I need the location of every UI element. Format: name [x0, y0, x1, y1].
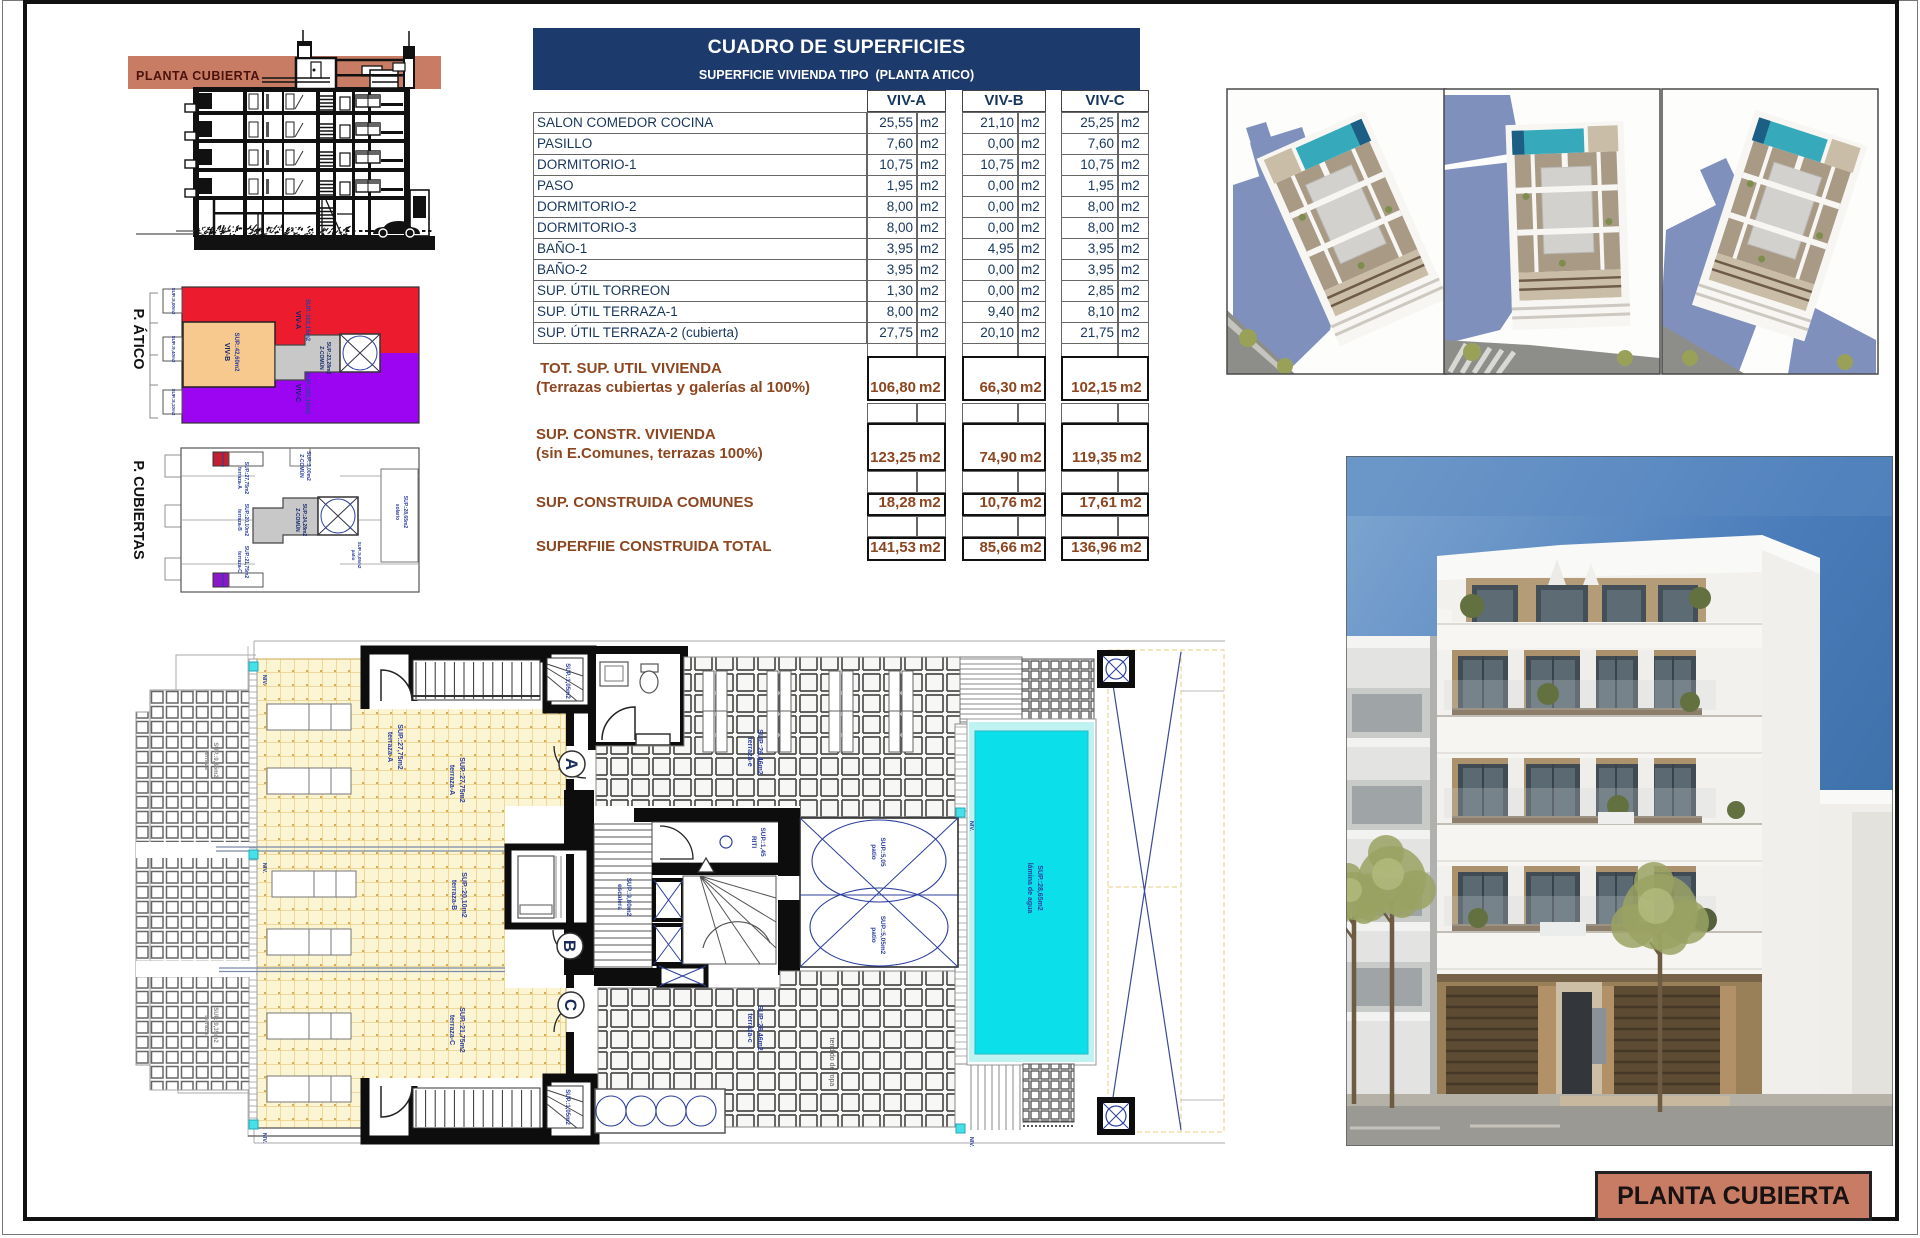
svg-text:terraza: terraza [203, 750, 209, 770]
svg-text:lámina de agua: lámina de agua [1026, 863, 1033, 914]
svg-text:P. CUBIERTAS: P. CUBIERTAS [130, 460, 146, 560]
svg-text:SUP.:102,15m2: SUP.:102,15m2 [304, 299, 310, 342]
svg-text:SUP.:42,60m2: SUP.:42,60m2 [233, 333, 239, 373]
svg-text:Z-COMÚN: Z-COMÚN [294, 508, 301, 532]
svg-text:terraza-A: terraza-A [386, 732, 393, 762]
svg-text:SUP.:3,00m2: SUP.:3,00m2 [305, 451, 311, 481]
svg-text:Z-COMÚN: Z-COMÚN [298, 454, 305, 478]
svg-text:tendido de ropa: tendido de ropa [828, 1038, 835, 1087]
svg-text:SUP.:28,65m2: SUP.:28,65m2 [1036, 865, 1043, 911]
svg-text:SUP.:27,75m2: SUP.:27,75m2 [458, 757, 465, 803]
svg-text:SUP.:21,75m2: SUP.:21,75m2 [458, 1007, 465, 1053]
svg-text:SUP.:8,00m2: SUP.:8,00m2 [171, 288, 176, 315]
svg-text:VIV-C: VIV-C [294, 384, 301, 402]
svg-text:SUP.:26,46m2: SUP.:26,46m2 [756, 729, 763, 775]
svg-text:terraza-B: terraza-B [450, 880, 457, 910]
svg-text:SUP.:102,15m2: SUP.:102,15m2 [304, 372, 310, 415]
svg-text:SUP.:1,05m2: SUP.:1,05m2 [564, 663, 570, 699]
svg-text:NIV.: NIV. [261, 1133, 267, 1144]
svg-text:SUP.:28,65m2: SUP.:28,65m2 [402, 496, 408, 529]
svg-text:SUP.:1,05m2: SUP.:1,05m2 [564, 1089, 570, 1125]
svg-text:patio: patio [870, 844, 877, 860]
svg-text:solario: solario [394, 504, 400, 520]
svg-text:terraza-A: terraza-A [236, 467, 242, 489]
svg-text:SUP.:5,05: SUP.:5,05 [879, 837, 886, 867]
svg-text:SUP.:5,05m2: SUP.:5,05m2 [879, 916, 886, 955]
svg-text:PLANTA CUBIERTA: PLANTA CUBIERTA [136, 69, 260, 83]
svg-text:SUP.:24,28m2: SUP.:24,28m2 [301, 504, 307, 537]
svg-text:escalera: escalera [616, 884, 623, 910]
svg-text:VIV-A: VIV-A [294, 311, 301, 329]
svg-text:patio: patio [870, 927, 877, 943]
svg-text:SUP.:1,45: SUP.:1,45 [759, 827, 766, 857]
svg-text:SUP.:9,35m2: SUP.:9,35m2 [212, 742, 218, 778]
svg-text:NIV.: NIV. [261, 863, 267, 874]
svg-text:SUP.:27,75m2: SUP.:27,75m2 [396, 724, 403, 770]
svg-text:SUP.:23,28m2: SUP.:23,28m2 [325, 342, 331, 375]
svg-text:terraza-C: terraza-C [448, 1015, 455, 1045]
svg-text:VIV-B: VIV-B [223, 343, 230, 361]
svg-text:A: A [562, 758, 581, 770]
svg-text:SUP.:20,10m2: SUP.:20,10m2 [243, 504, 249, 537]
svg-text:terraza-B: terraza-B [236, 509, 242, 531]
svg-text:NIV.: NIV. [261, 675, 267, 686]
svg-text:patio: patio [351, 550, 356, 561]
svg-text:NIV.: NIV. [968, 821, 974, 832]
svg-text:SUP.:9,80m2: SUP.:9,80m2 [625, 878, 632, 917]
svg-text:SUP.:21,75m2: SUP.:21,75m2 [243, 546, 249, 579]
svg-text:SUP.:8,10m2: SUP.:8,10m2 [171, 389, 176, 416]
svg-text:P. ÁTICO: P. ÁTICO [130, 309, 147, 370]
svg-text:RITI: RITI [750, 836, 757, 848]
svg-text:torreon: torreon [221, 573, 226, 588]
svg-text:terraza-A: terraza-A [448, 765, 455, 795]
svg-text:B: B [560, 940, 579, 952]
svg-text:SUP.:20,10m2: SUP.:20,10m2 [460, 872, 467, 918]
svg-text:terraza: terraza [203, 1015, 209, 1035]
svg-text:SUP.:27,75m2: SUP.:27,75m2 [243, 462, 249, 495]
svg-text:SUP.:9,40m2: SUP.:9,40m2 [171, 336, 176, 363]
svg-text:torreon: torreon [221, 453, 226, 468]
svg-text:SUP.:26,46m2: SUP.:26,46m2 [756, 1005, 763, 1051]
svg-text:SUP.:5,05m2: SUP.:5,05m2 [357, 542, 362, 569]
svg-text:terraza-C: terraza-C [236, 551, 242, 573]
svg-text:Z-COMÚN: Z-COMÚN [318, 346, 325, 370]
svg-text:terraza-e: terraza-e [746, 737, 753, 766]
svg-text:terraza-c: terraza-c [746, 1013, 753, 1042]
svg-text:C: C [561, 999, 580, 1011]
svg-text:SUP.:9,35m2: SUP.:9,35m2 [212, 1007, 218, 1043]
svg-text:NIV.: NIV. [968, 1137, 974, 1147]
